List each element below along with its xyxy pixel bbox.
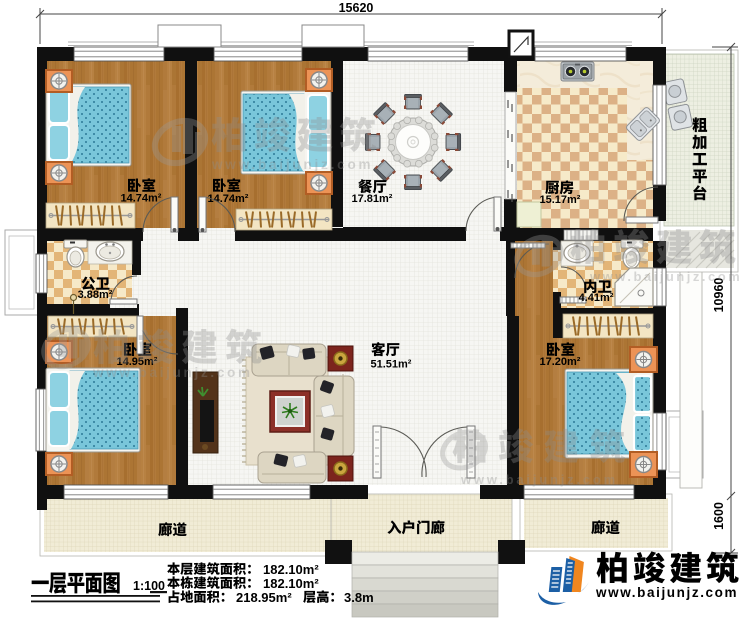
- svg-text:15.17m²: 15.17m²: [540, 194, 581, 206]
- svg-text:51.51m²: 51.51m²: [371, 359, 412, 371]
- svg-text:4.41m²: 4.41m²: [579, 292, 614, 304]
- svg-text:www.baijunjz.com: www.baijunjz.com: [595, 585, 738, 600]
- svg-text:15620: 15620: [339, 1, 374, 15]
- svg-text:1:100: 1:100: [133, 579, 165, 593]
- svg-text:www.baijunjz.com: www.baijunjz.com: [211, 157, 373, 172]
- svg-text:218.95m²: 218.95m²: [236, 590, 292, 605]
- svg-text:3.88m²: 3.88m²: [78, 289, 113, 301]
- svg-text:14.74m²: 14.74m²: [208, 193, 249, 205]
- svg-text:1600: 1600: [712, 502, 726, 530]
- svg-text:www.baijunjz.com: www.baijunjz.com: [92, 365, 253, 380]
- svg-text:www.baijunjz.com: www.baijunjz.com: [589, 269, 742, 284]
- svg-text:www.baijunjz.com: www.baijunjz.com: [460, 472, 618, 487]
- svg-text:3.8m: 3.8m: [344, 590, 374, 605]
- svg-text:182.10m²: 182.10m²: [263, 562, 319, 577]
- svg-text:17.20m²: 17.20m²: [540, 356, 581, 368]
- svg-text:182.10m²: 182.10m²: [263, 576, 319, 591]
- svg-text:17.81m²: 17.81m²: [352, 193, 393, 205]
- svg-text:14.74m²: 14.74m²: [121, 193, 162, 205]
